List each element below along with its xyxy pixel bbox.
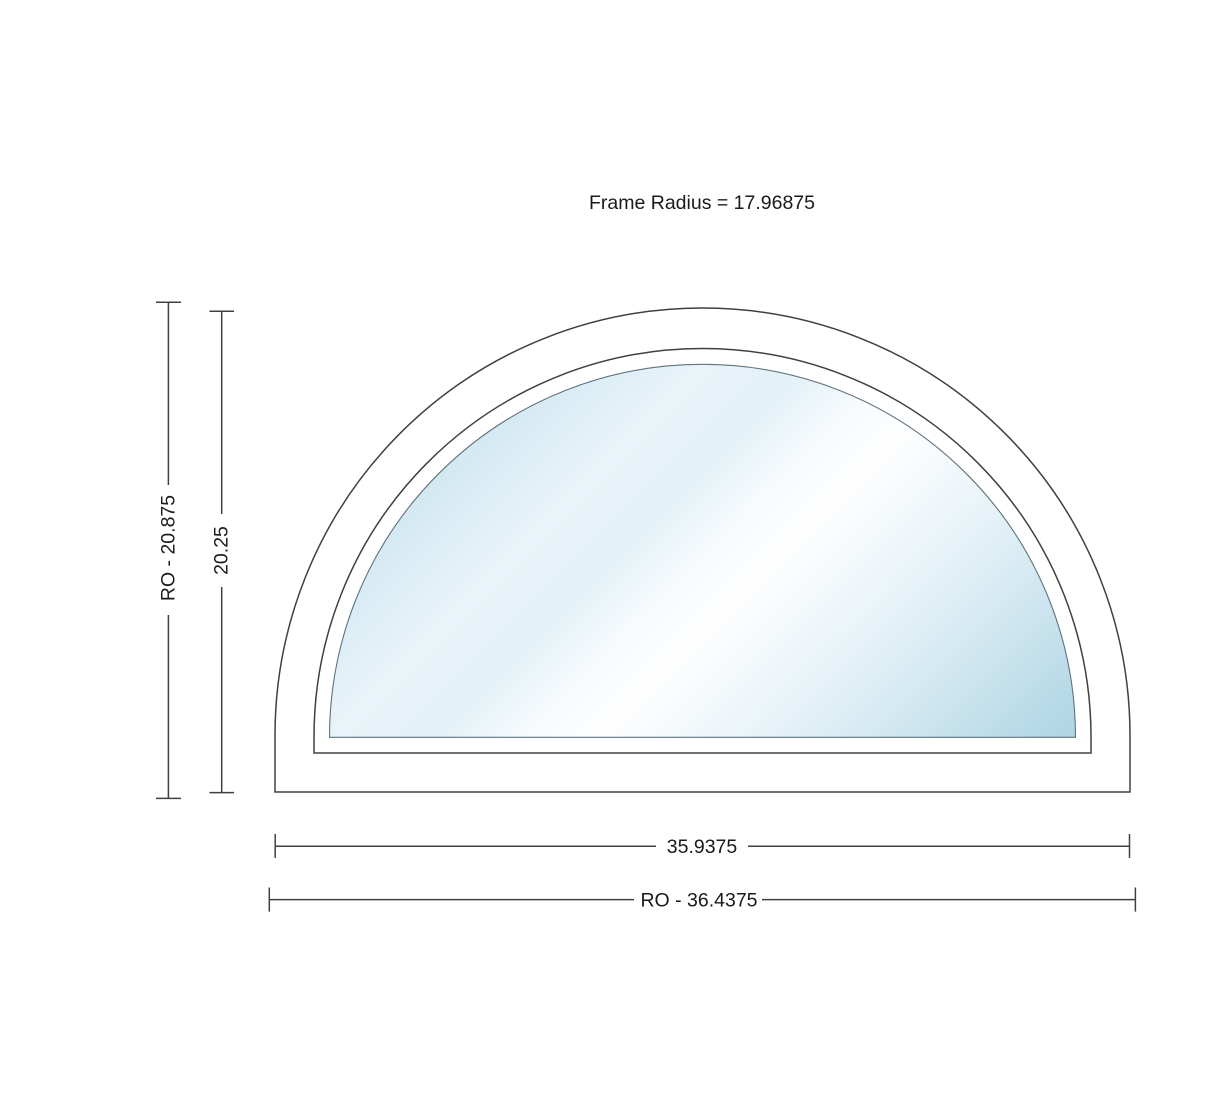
svg-text:20.25: 20.25 xyxy=(211,526,233,575)
svg-text:35.9375: 35.9375 xyxy=(667,836,738,858)
svg-text:Frame Radius = 17.96875: Frame Radius = 17.96875 xyxy=(589,192,815,214)
svg-text:RO - 36.4375: RO - 36.4375 xyxy=(640,890,757,912)
svg-text:RO - 20.875: RO - 20.875 xyxy=(157,495,179,601)
